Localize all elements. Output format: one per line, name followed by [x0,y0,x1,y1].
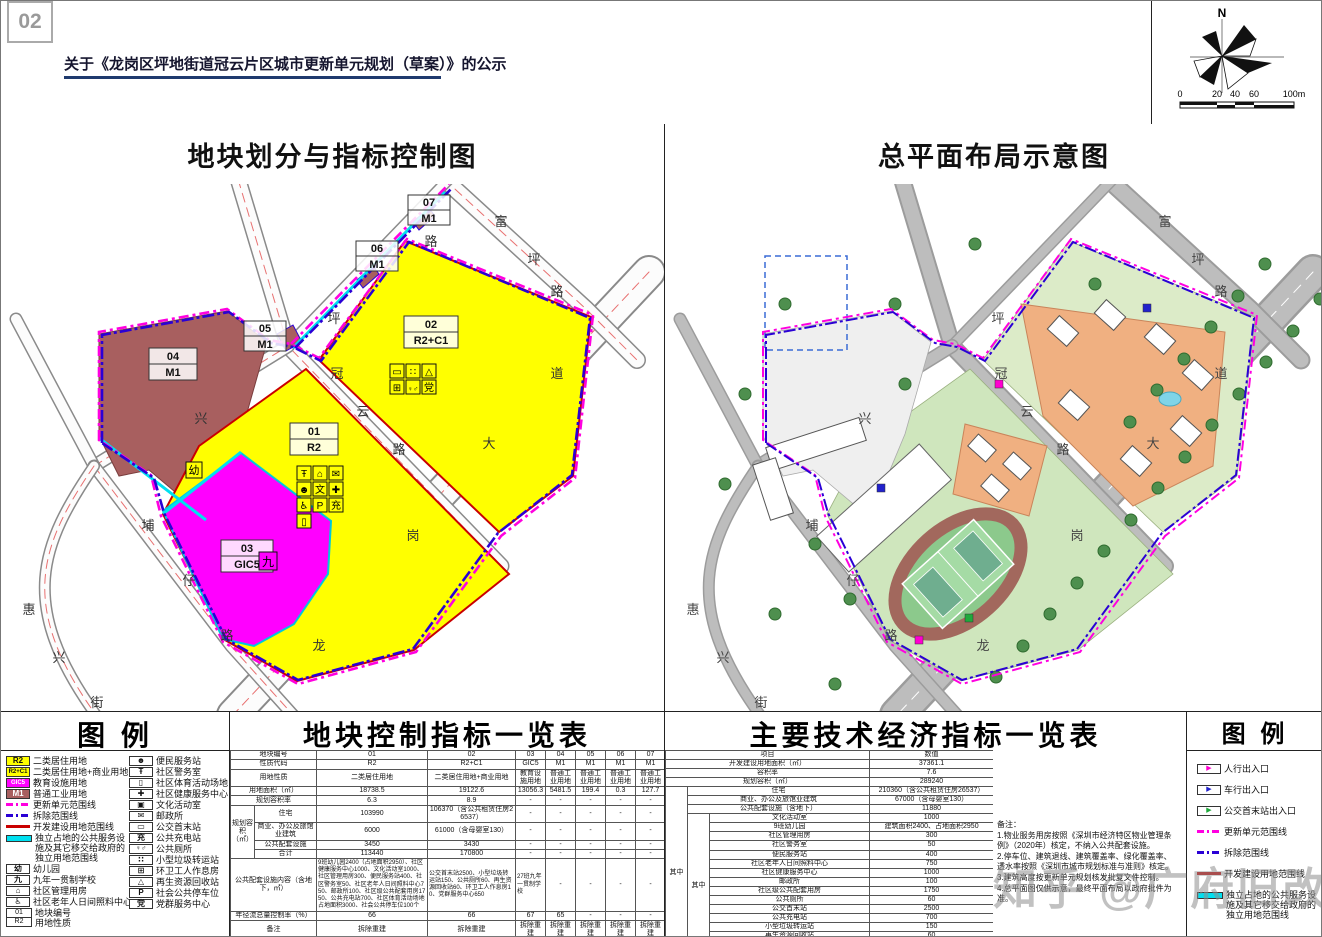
svg-text:富: 富 [1158,214,1171,229]
legend-item: △再生资源回收站 [129,877,229,887]
table-row: 社区警务室50 [666,841,994,850]
public-parking-icon: P [129,888,153,898]
legend-divider [1187,750,1322,751]
svg-text:P: P [317,501,324,512]
land-use-swatch-m1: M1 [6,789,30,799]
table-row: 9班幼儿园建筑面积2400、占地面积2950 [666,823,994,832]
remark-line: 1.物业服务用房按照《深圳市经济特区物业管理条例》（2020年）核定，不纳入公共… [997,831,1179,851]
svg-text:▭: ▭ [392,367,401,378]
master-plan-svg: 富 坪 路 坪 冠 云 路 龙 岗 大 道 埔 仔 路 惠 兴 街 兴 [665,184,1322,711]
legend-item: ♿社区老年人日间照料中心 [6,897,132,907]
svg-text:04: 04 [167,351,180,363]
svg-text:100m: 100m [1283,89,1306,99]
parcel-label-06: 06M1 [356,241,398,271]
legend-item: 开发建设用地范围线 [1197,869,1319,879]
page-number-box: 02 [7,1,53,43]
svg-text:路: 路 [220,628,233,643]
tech-economic-section: 主要技术经济指标一览表 项目数值 开发建设用地面积（㎡）37361.1 容积率7… [664,712,1186,937]
update-unit-line-icon [1197,830,1221,833]
bus-terminal-icon: ▭ [390,364,404,378]
public-toilet-icon: ♀♂ [406,380,420,394]
legend-item: 拆除范围线 [6,811,132,821]
remarks-title: 备注： [997,820,1179,830]
legend-item: 充公共充电站 [129,833,229,843]
svg-text:党: 党 [424,381,434,394]
svg-text:富: 富 [494,214,507,229]
table-row: 社区老年人日间照料中心750 [666,859,994,868]
svg-text:惠: 惠 [22,602,35,617]
legend-right-items: ▶人行出入口 ▶车行出入口 ▶公交首末站出入口 更新单元范围线 拆除范围线 开发… [1197,764,1319,931]
legend-left-col1: R2二类居住用地 R2+C1二类居住用地+商业用地 GIC5教育设施用地 M1普… [6,756,132,929]
legend-item: ▯社区体育活动场地 [129,778,229,788]
parcel-label-04: 04M1 [149,348,197,380]
svg-text:文: 文 [315,483,325,496]
svg-text:道: 道 [1214,366,1227,381]
legend-item: GIC5教育设施用地 [6,778,132,788]
svg-text:路: 路 [550,284,563,299]
left-panel-title: 地块划分与指标控制图 [188,135,478,174]
bottom-band: 图 例 R2二类居住用地 R2+C1二类居住用地+商业用地 GIC5教育设施用地… [1,711,1322,937]
north-arrow-and-scale: N 0 20 40 60 100m [1152,1,1322,124]
svg-text:M1: M1 [369,259,384,271]
legend-item: 更新单元范围线 [1197,827,1319,837]
health-center-icon: ✚ [129,789,153,799]
elder-care-icon: ♿ [6,897,30,907]
table-row: 规划容积（㎡）289240 [666,778,994,787]
legend-item: ▣文化活动室 [129,800,229,810]
table-row: 地块编号01020304050607 [231,751,666,760]
demolition-line-icon [1197,851,1221,854]
legend-item: ▶车行出入口 [1197,785,1319,795]
table-row: 商业、办公及旅馆业建筑600061000（含母婴室130）----- [231,823,666,841]
north-label: N [1218,6,1227,20]
remark-line: 2.停车位、建筑退线、建筑覆盖率、绿化覆盖率、透水率按照《深圳市城市规划标准与准… [997,852,1179,872]
legend-divider [1,750,229,751]
table-row: 社区管理用房300 [666,832,994,841]
party-service-icon: 党 [422,380,436,394]
legend-left: 图 例 R2二类居住用地 R2+C1二类居住用地+商业用地 GIC5教育设施用地… [1,712,229,937]
svg-text:坪: 坪 [527,252,540,267]
svg-text:兴: 兴 [858,411,871,426]
svg-text:✉: ✉ [332,469,340,480]
table-row: 公共厕所60 [666,895,994,904]
svg-text:Ŧ: Ŧ [301,469,307,480]
remarks-block: 备注： 1.物业服务用房按照《深圳市经济特区物业管理条例》（2020年）核定，不… [997,820,1179,905]
svg-text:♿: ♿ [300,501,309,512]
north-arrow-icon [1190,19,1284,93]
legend-item: 幼幼儿园 [6,864,132,874]
pedestrian-entrance-icon [995,380,1003,388]
sports-ground-icon: ▯ [129,778,153,788]
svg-text:九: 九 [262,555,274,569]
culture-room-icon: 文 [313,482,327,496]
svg-text:埔: 埔 [141,518,154,533]
svg-text:路: 路 [1056,442,1069,457]
svg-text:道: 道 [550,366,563,381]
legend-item: ∷小型垃圾转运站 [129,855,229,865]
tech-economic-table: 项目数值 开发建设用地面积（㎡）37361.1 容积率7.6 规划容积（㎡）28… [665,750,993,937]
recycle-station-icon: △ [129,877,153,887]
public-toilet-icon: ♀♂ [129,844,153,854]
table-row: 用地性质二类居住用地二类居住用地+商业用地教育设施用地普通工业用地普通工业用地普… [231,769,666,787]
svg-text:01: 01 [308,426,320,438]
planning-notice-page: 02 关于《龙岗区坪地街道冠云片区城市更新单元规划（草案）》的公示 N [0,0,1322,937]
legend-item: ☻便民服务站 [129,756,229,766]
svg-text:路: 路 [392,442,405,457]
table-row: 年径流总量控制率（%）66666765--- [231,912,666,921]
svg-text:60: 60 [1249,89,1259,99]
legend-item: ▶公交首末站出入口 [1197,806,1319,816]
table-row: 项目数值 [666,751,994,760]
legend-right: 图 例 ▶人行出入口 ▶车行出入口 ▶公交首末站出入口 更新单元范围线 拆除范围… [1186,712,1322,937]
remark-line: 3.建筑高度按更新单元规划核发批复文件控制。 [997,873,1179,883]
public-parking-icon: P [313,498,327,512]
land-use-swatch-r2: R2 [6,756,30,766]
svg-text:岗: 岗 [406,528,419,543]
legend-item: ▶人行出入口 [1197,764,1319,774]
charging-station-icon: 充 [329,498,343,512]
elder-care-icon: ♿ [297,498,311,512]
svg-text:♀♂: ♀♂ [408,386,419,393]
svg-text:街: 街 [754,695,767,710]
table-row: 公交首末站2500 [666,904,994,913]
table-row: 公共配套设施内容（含地下，㎡）9班幼儿园2400（占地面积2950）、社区健康服… [231,859,666,912]
svg-text:街: 街 [90,695,103,710]
table-row: 用地面积（㎡）18738.519122.613056.35481.5199.40… [231,787,666,796]
update-unit-line-icon [6,803,30,806]
pedestrian-entrance-icon [915,636,923,644]
zoning-map-svg: 01R2 02R2+C1 03GIC5 04M1 05M1 [1,184,664,711]
legend-item: ✉邮政所 [129,811,229,821]
kindergarten-icon: 幼 [186,462,202,478]
sanitation-room-icon: ⊞ [129,866,153,876]
svg-text:仔: 仔 [846,573,859,588]
plot-number-box-icon: 01 R2 [6,908,32,927]
bus-terminal-entrance-icon [965,614,973,622]
kindergarten-icon: 幼 [6,864,30,874]
document-title: 关于《龙岗区坪地街道冠云片区城市更新单元规划（草案）》的公示 [64,53,507,74]
svg-text:⊞: ⊞ [393,383,401,394]
plot-indicator-table: 地块编号01020304050607 性质代码R2R2+C1GIC5M1M1M1… [230,750,665,937]
legend-item: 九九年一贯制学校 [6,875,132,885]
remark-line: 4.总平面图仅供示意，最终平面布局以政府批件为准。 [997,884,1179,904]
parcel-label-07: 07M1 [408,195,450,225]
table-row: 邮政所100 [666,877,994,886]
svg-text:大: 大 [1146,436,1159,451]
nine-year-school-icon: 九 [6,875,30,885]
svg-text:充: 充 [331,499,341,512]
legend-item: 开发建设用地范围线 [6,822,132,832]
tech-economic-table-wrap: 项目数值 开发建设用地面积（㎡）37361.1 容积率7.6 规划容积（㎡）28… [665,750,993,937]
waste-transfer-icon: ∷ [129,855,153,865]
post-office-icon: ✉ [129,811,153,821]
legend-item: 党党群服务中心 [129,899,229,909]
party-service-icon: 党 [129,899,153,909]
svg-text:0: 0 [1177,89,1182,99]
table-row: 合计113440170800----- [231,850,666,859]
legend-item: 独立占地的公共服务设施及其它移交给政府的独立用地范围线 [1197,890,1319,920]
svg-text:△: △ [425,367,433,378]
svg-text:坪: 坪 [327,311,340,326]
waste-transfer-icon: ∷ [406,364,420,378]
independent-land-line-icon [1197,892,1223,899]
svg-text:云: 云 [356,404,369,419]
svg-text:40: 40 [1230,89,1240,99]
legend-item: P社会公共停车位 [129,888,229,898]
legend-item: 拆除范围线 [1197,848,1319,858]
svg-text:兴: 兴 [716,650,729,665]
svg-text:龙: 龙 [312,638,325,653]
legend-left-col2: ☻便民服务站 Ŧ社区警务室 ▯社区体育活动场地 ✚社区健康服务中心 ▣文化活动室… [129,756,229,910]
svg-text:✚: ✚ [332,485,340,496]
table-row: 规划容积率6.38.9----- [231,796,666,805]
compass-box: N 0 20 40 60 100m [1151,1,1322,124]
svg-text:M1: M1 [257,339,272,351]
table-row: 开发建设用地面积（㎡）37361.1 [666,760,994,769]
legend-item: 更新单元范围线 [6,800,132,810]
bus-terminal-entrance-icon: ▶ [1197,806,1221,816]
page-number: 02 [18,10,41,34]
table-row: 小型垃圾转运站150 [666,922,994,931]
legend-item: ⊞环卫工人作息房 [129,866,229,876]
table-row: 便民服务站400 [666,850,994,859]
svg-text:云: 云 [1020,404,1033,419]
vehicle-entrance-icon [877,484,885,492]
bus-terminal-icon: ▭ [129,822,153,832]
svg-text:仔: 仔 [182,573,195,588]
recycle-station-icon: △ [422,364,436,378]
svg-text:兴: 兴 [194,411,207,426]
svg-text:06: 06 [371,243,383,255]
scale-bar: 0 20 40 60 100m [1177,89,1305,108]
svg-text:GIC5: GIC5 [234,559,260,571]
legend-left-title: 图 例 [1,714,229,754]
plot-indicator-title: 地块控制指标一览表 [230,714,664,754]
legend-item: R2+C1二类居住用地+商业用地 [6,767,132,777]
road-huixing [45,466,96,711]
legend-item: R2二类居住用地 [6,756,132,766]
development-line-icon [6,825,30,828]
svg-text:∷: ∷ [410,367,416,378]
culture-room-icon: ▣ [129,800,153,810]
zoning-map: 01R2 02R2+C1 03GIC5 04M1 05M1 [1,184,664,711]
legend-item: ✚社区健康服务中心 [129,789,229,799]
svg-text:▯: ▯ [301,517,307,528]
table-row: 规划容积（㎡）住宅103990106370（含公共租赁住房26537）----- [231,805,666,823]
legend-item: Ŧ社区警务室 [129,767,229,777]
legend-item: ♀♂公共厕所 [129,844,229,854]
table-row: 其中文化活动室1000 [666,814,994,823]
left-panel-title-bar: 地块划分与指标控制图 [1,124,664,185]
convenience-station-icon: ☻ [297,482,311,496]
post-office-icon: ✉ [329,466,343,480]
table-row: 容积率7.6 [666,769,994,778]
pedestrian-entrance-icon: ▶ [1197,764,1221,774]
svg-text:幼: 幼 [189,464,200,477]
svg-text:岗: 岗 [1070,528,1083,543]
demolition-line-icon [6,814,30,817]
health-center-icon: ✚ [329,482,343,496]
table-row: 公共配套设施（含地下）11880 [666,805,994,814]
svg-text:坪: 坪 [1191,252,1204,267]
right-panel-title: 总平面布局示意图 [878,135,1110,174]
svg-text:冠: 冠 [994,366,1007,381]
land-use-swatch-gic5: GIC5 [6,778,30,788]
parcel-label-02: 02R2+C1 [404,316,458,348]
legend-right-title: 图 例 [1187,714,1322,749]
svg-text:07: 07 [423,197,435,209]
right-panel-title-bar: 总平面布局示意图 [665,124,1322,185]
svg-text:⌂: ⌂ [317,469,323,480]
legend-item: M1普通工业用地 [6,789,132,799]
nine-year-school-icon: 九 [259,552,277,570]
svg-text:路: 路 [1214,284,1227,299]
vehicle-entrance-icon [1143,304,1151,312]
svg-text:02: 02 [425,319,437,331]
legend-item: ⌂社区管理用房 [6,886,132,896]
parcel-label-05: 05M1 [244,321,286,351]
table-row: 其中住宅210360（含公共租赁住房26537） [666,787,994,796]
community-mgmt-icon: ⌂ [6,886,30,896]
svg-text:☻: ☻ [299,485,310,496]
road-west [16,319,94,466]
parcel-label-01: 01R2 [290,423,338,455]
legend-item: 独立占地的公共服务设施及其它移交给政府的独立用地范围线 [6,833,132,863]
legend-item: ▭公交首末站 [129,822,229,832]
table-row: 公共配套设施34503430----- [231,840,666,849]
charging-station-icon: 充 [129,833,153,843]
table-row: 性质代码R2R2+C1GIC5M1M1M1M1 [231,760,666,769]
legend-item: 01 R2 地块编号 用地性质 [6,908,132,928]
title-underline [64,76,441,79]
svg-text:R2: R2 [307,442,321,454]
svg-text:M1: M1 [165,367,180,379]
svg-text:龙: 龙 [976,638,989,653]
svg-text:惠: 惠 [686,602,699,617]
svg-text:03: 03 [241,543,253,555]
table-row: 社区级公共配套用房1750 [666,886,994,895]
table-row: 商业、办公及旅馆业建筑67000（含母婴室130） [666,796,994,805]
independent-land-line-icon [6,835,32,842]
svg-text:兴: 兴 [52,650,65,665]
development-line-icon [1197,872,1221,875]
sports-ground-icon: ▯ [297,514,311,528]
plot-indicator-section: 地块控制指标一览表 地块编号01020304050607 性质代码R2R2+C1… [229,712,664,937]
police-room-icon: Ŧ [129,767,153,777]
table-row: 备注拆除重建拆除重建拆除重建拆除重建拆除重建拆除重建拆除重建 [231,921,666,937]
plot-indicator-table-wrap: 地块编号01020304050607 性质代码R2R2+C1GIC5M1M1M1… [230,750,665,937]
table-row: 再生资源回收站60 [666,931,994,937]
svg-text:坪: 坪 [991,311,1004,326]
pool [1159,392,1181,406]
tech-economic-title: 主要技术经济指标一览表 [665,714,1186,754]
svg-text:M1: M1 [421,213,436,225]
table-row: 公共充电站700 [666,913,994,922]
svg-text:20: 20 [1212,89,1222,99]
convenience-station-icon: ☻ [129,756,153,766]
sanitation-room-icon: ⊞ [390,380,404,394]
svg-text:路: 路 [424,234,437,249]
svg-text:埔: 埔 [805,518,818,533]
table-row: 社区健康服务中心1000 [666,868,994,877]
svg-text:05: 05 [259,323,271,335]
svg-text:冠: 冠 [330,366,343,381]
community-mgmt-icon: ⌂ [313,466,327,480]
police-room-icon: Ŧ [297,466,311,480]
svg-text:路: 路 [884,628,897,643]
vehicle-entrance-icon: ▶ [1197,785,1221,795]
master-plan-map: 富 坪 路 坪 冠 云 路 龙 岗 大 道 埔 仔 路 惠 兴 街 兴 [665,184,1322,711]
svg-text:R2+C1: R2+C1 [414,335,449,347]
header: 02 关于《龙岗区坪地街道冠云片区城市更新单元规划（草案）》的公示 N [1,1,1322,125]
svg-text:大: 大 [482,436,495,451]
land-use-swatch-r2c1: R2+C1 [6,767,30,777]
